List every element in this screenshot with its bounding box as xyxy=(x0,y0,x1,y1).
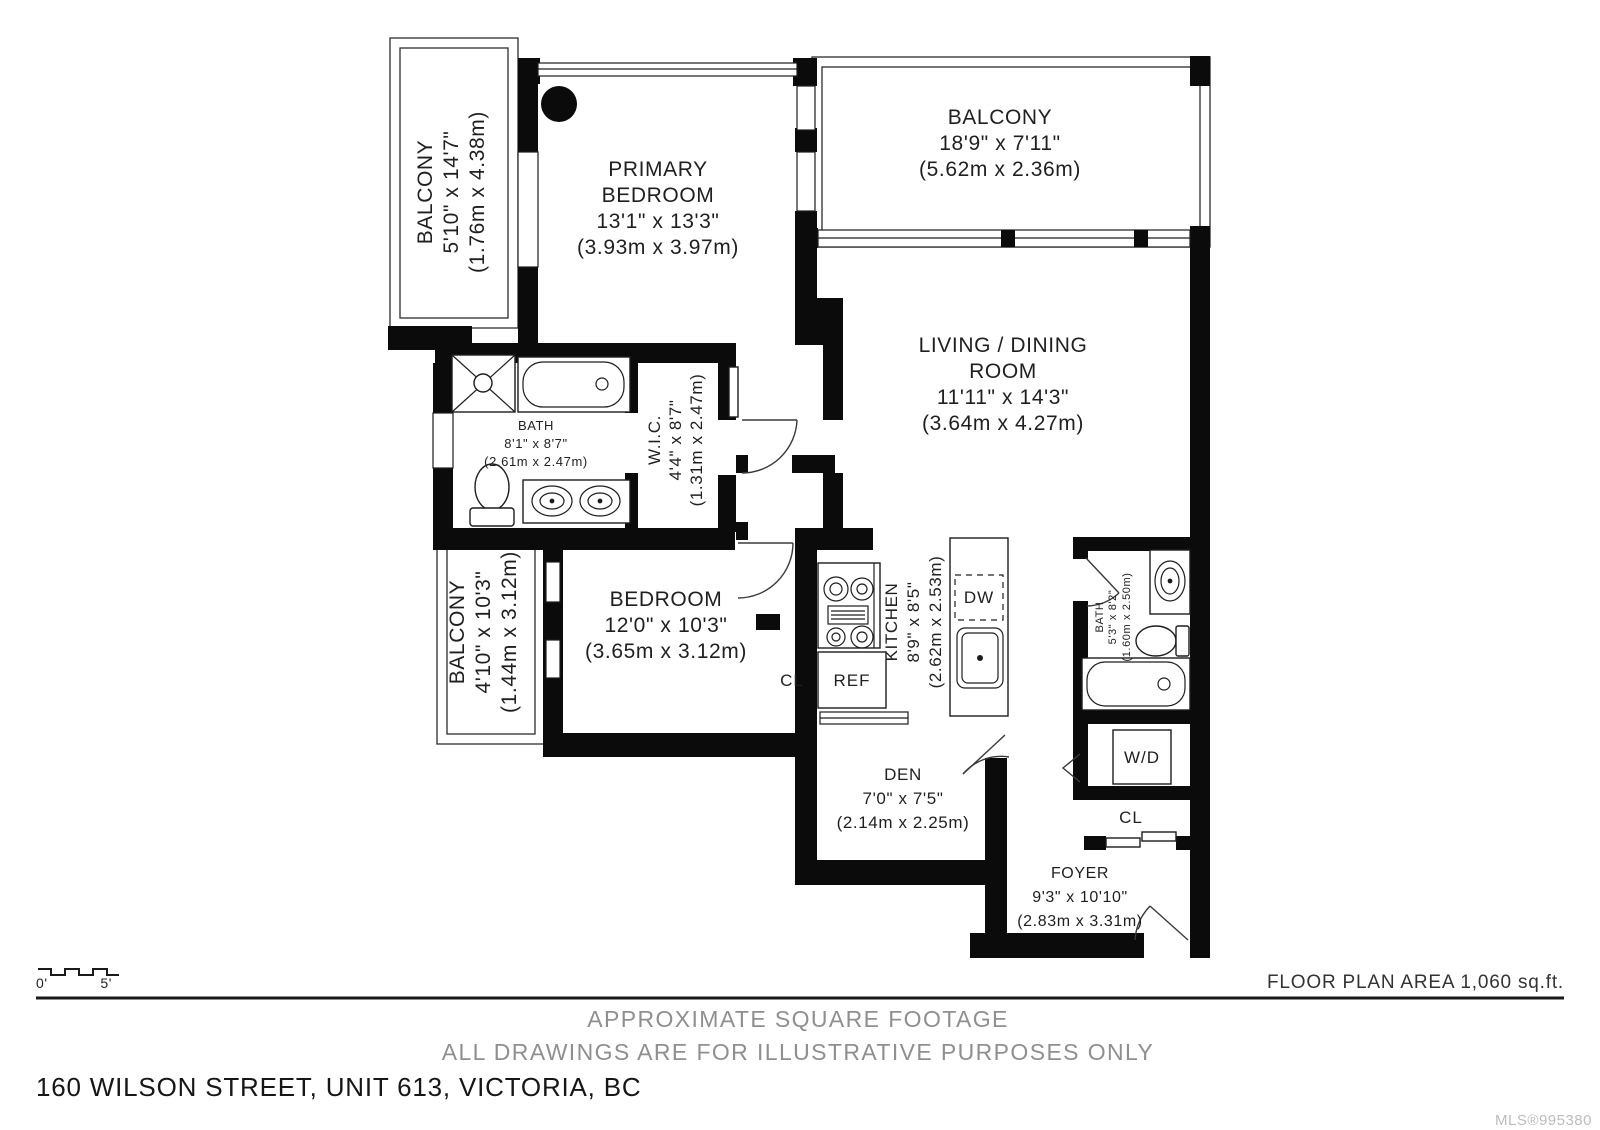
door-arc-hall xyxy=(742,420,797,473)
room-label: BEDROOM xyxy=(610,588,723,611)
room-label: ROOM xyxy=(969,360,1037,383)
room-label: BALCONY xyxy=(446,580,469,685)
property-address: 160 WILSON STREET, UNIT 613, VICTORIA, B… xyxy=(36,1072,641,1102)
room-label: FOYER xyxy=(1051,865,1109,882)
room-dims-metric: (2.83m x 3.31m) xyxy=(1017,913,1142,930)
bathtub-main xyxy=(518,357,630,412)
room-kitchen: KITCHEN 8'9" x 8'5" (2.62m x 2.53m) xyxy=(882,556,945,689)
window xyxy=(433,413,453,468)
disclaimer-line-1: APPROXIMATE SQUARE FOOTAGE xyxy=(587,1006,1009,1032)
floor-area-label: FLOOR PLAN AREA 1,060 sq.ft. xyxy=(1267,972,1564,993)
room-bath-main: BATH 8'1" x 8'7" (2.61m x 2.47m) xyxy=(484,418,588,469)
wall-segment xyxy=(795,860,995,885)
room-dims-metric: (2.62m x 2.53m) xyxy=(926,556,945,689)
scale-end-label: 5' xyxy=(100,975,112,991)
vanity-main xyxy=(523,480,630,523)
floor-plan-svg: BALCONY 5'10" x 14'7" (1.76m x 4.38m) PR… xyxy=(0,0,1600,1130)
wall-segment xyxy=(518,267,538,345)
disclaimer-line-2: ALL DRAWINGS ARE FOR ILLUSTRATIVE PURPOS… xyxy=(442,1039,1155,1065)
wall-segment xyxy=(792,455,835,473)
bathtub-small xyxy=(1082,658,1190,710)
room-balcony-top-right: BALCONY 18'9" x 7'11" (5.62m x 2.36m) xyxy=(919,106,1081,181)
toilet-main xyxy=(470,464,514,526)
room-label: BATH xyxy=(518,418,554,433)
room-dims: 8'9" x 8'5" xyxy=(904,582,923,663)
wall-segment xyxy=(815,298,843,345)
wall-segment xyxy=(985,758,1007,958)
room-dims: 4'4" x 8'7" xyxy=(666,400,685,481)
counter xyxy=(820,712,908,724)
door-leaf-entry xyxy=(1150,906,1188,940)
room-label: W.I.C. xyxy=(645,415,664,465)
room-dims: 11'11" x 14'3" xyxy=(937,386,1069,409)
window-post xyxy=(1134,230,1148,247)
room-dims: 9'3" x 10'10" xyxy=(1032,889,1128,906)
room-bath-small: BATH 5'3" x 8'2" (1.60m x 2.50m) xyxy=(1094,572,1133,661)
room-label: BALCONY xyxy=(948,106,1053,129)
shower xyxy=(452,355,515,412)
room-primary-bedroom: PRIMARY BEDROOM 13'1" x 13'3" (3.93m x 3… xyxy=(577,158,739,259)
wall-segment xyxy=(718,475,736,532)
wall-segment xyxy=(518,84,538,152)
room-dims-metric: (3.65m x 3.12m) xyxy=(585,640,747,663)
wall-segment xyxy=(433,468,453,532)
wall-segment xyxy=(736,522,748,540)
toilet-small xyxy=(1136,626,1189,656)
wall-segment xyxy=(1073,786,1190,800)
room-balcony-top-left: BALCONY 5'10" x 14'7" (1.76m x 4.38m) xyxy=(414,111,489,273)
room-dims-metric: (1.76m x 4.38m) xyxy=(466,111,489,273)
room-bedroom: BEDROOM 12'0" x 10'3" (3.65m x 3.12m) xyxy=(585,588,747,663)
window xyxy=(797,86,815,130)
structural-column xyxy=(541,86,577,122)
wall-segment xyxy=(823,340,843,420)
dishwasher-label: DW xyxy=(964,588,994,607)
room-label: DEN xyxy=(884,765,922,784)
wall-segment xyxy=(795,211,817,345)
wall-segment xyxy=(1190,56,1210,86)
room-dims: 5'10" x 14'7" xyxy=(440,131,463,254)
door-leaf-bath-main xyxy=(729,367,738,417)
wall-segment xyxy=(543,528,735,550)
room-dims-metric: (1.44m x 3.12m) xyxy=(498,551,521,713)
room-dims: 13'1" x 13'3" xyxy=(597,210,720,233)
window-post xyxy=(1001,230,1015,247)
wall-segment xyxy=(518,58,540,84)
room-label: KITCHEN xyxy=(882,583,901,662)
wall-segment xyxy=(433,528,563,550)
wall-segment xyxy=(823,473,843,537)
room-label: BEDROOM xyxy=(602,184,715,207)
room-label: BATH xyxy=(1094,602,1106,633)
room-dims-metric: (3.93m x 3.97m) xyxy=(577,236,739,259)
scale-bar: 0' 5' xyxy=(36,969,119,991)
kitchen-island xyxy=(950,538,1008,716)
door-arc-bedroom xyxy=(738,543,793,598)
closet-foyer-label: CL xyxy=(1119,808,1143,827)
closet-bedroom-label: CL xyxy=(780,671,804,690)
room-foyer: FOYER 9'3" x 10'10" (2.83m x 3.31m) xyxy=(1017,865,1142,930)
room-dims: 5'3" x 8'2" xyxy=(1107,590,1119,645)
scale-start-label: 0' xyxy=(36,975,48,991)
room-balcony-left: BALCONY 4'10" x 10'3" (1.44m x 3.12m) xyxy=(446,551,521,713)
window xyxy=(518,152,538,267)
wall-segment xyxy=(970,933,1144,958)
room-living-dining: LIVING / DINING ROOM 11'11" x 14'3" (3.6… xyxy=(919,334,1088,435)
wall-segment xyxy=(543,733,817,757)
window xyxy=(797,152,815,211)
room-dims-metric: (2.14m x 2.25m) xyxy=(837,813,970,832)
room-label: BALCONY xyxy=(414,140,437,245)
room-dims: 4'10" x 10'3" xyxy=(472,571,495,694)
wall-segment xyxy=(1084,836,1106,850)
stove xyxy=(818,563,880,648)
room-dims: 7'0" x 7'5" xyxy=(863,789,944,808)
wall-segment xyxy=(1176,836,1190,850)
room-dims-metric: (2.61m x 2.47m) xyxy=(484,454,588,469)
room-wic: W.I.C. 4'4" x 8'7" (1.31m x 2.47m) xyxy=(645,374,706,507)
room-label: PRIMARY xyxy=(608,158,708,181)
wall-segment xyxy=(795,128,817,152)
bifold-closet-door xyxy=(1142,832,1176,841)
wall-segment xyxy=(1077,537,1190,551)
wall-segment xyxy=(1190,226,1210,958)
room-dims: 18'9" x 7'11" xyxy=(939,132,1060,155)
vanity-small xyxy=(1150,550,1190,614)
wall-segment xyxy=(736,455,748,473)
room-dims-metric: (5.62m x 2.36m) xyxy=(919,158,1081,181)
room-dims-metric: (3.64m x 4.27m) xyxy=(922,412,1084,435)
room-den: DEN 7'0" x 7'5" (2.14m x 2.25m) xyxy=(837,765,970,832)
room-dims-metric: (1.60m x 2.50m) xyxy=(1121,572,1133,661)
washer-dryer-label: W/D xyxy=(1124,748,1160,767)
room-dims-metric: (1.31m x 2.47m) xyxy=(687,374,706,507)
door-leaf-bath-small xyxy=(1086,558,1119,593)
window xyxy=(546,640,560,678)
window xyxy=(546,562,560,602)
wall-segment xyxy=(795,528,817,885)
bifold-closet-door xyxy=(1106,838,1140,847)
wall-segment xyxy=(756,614,780,630)
room-label: LIVING / DINING xyxy=(919,334,1088,357)
mls-number: MLS®995380 xyxy=(1495,1112,1592,1129)
room-dims: 8'1" x 8'7" xyxy=(504,436,567,451)
room-dims: 12'0" x 10'3" xyxy=(605,614,728,637)
fridge-label: REF xyxy=(834,671,871,690)
wall-segment xyxy=(433,363,453,413)
floor-plan-page: BALCONY 5'10" x 14'7" (1.76m x 4.38m) PR… xyxy=(0,0,1600,1130)
